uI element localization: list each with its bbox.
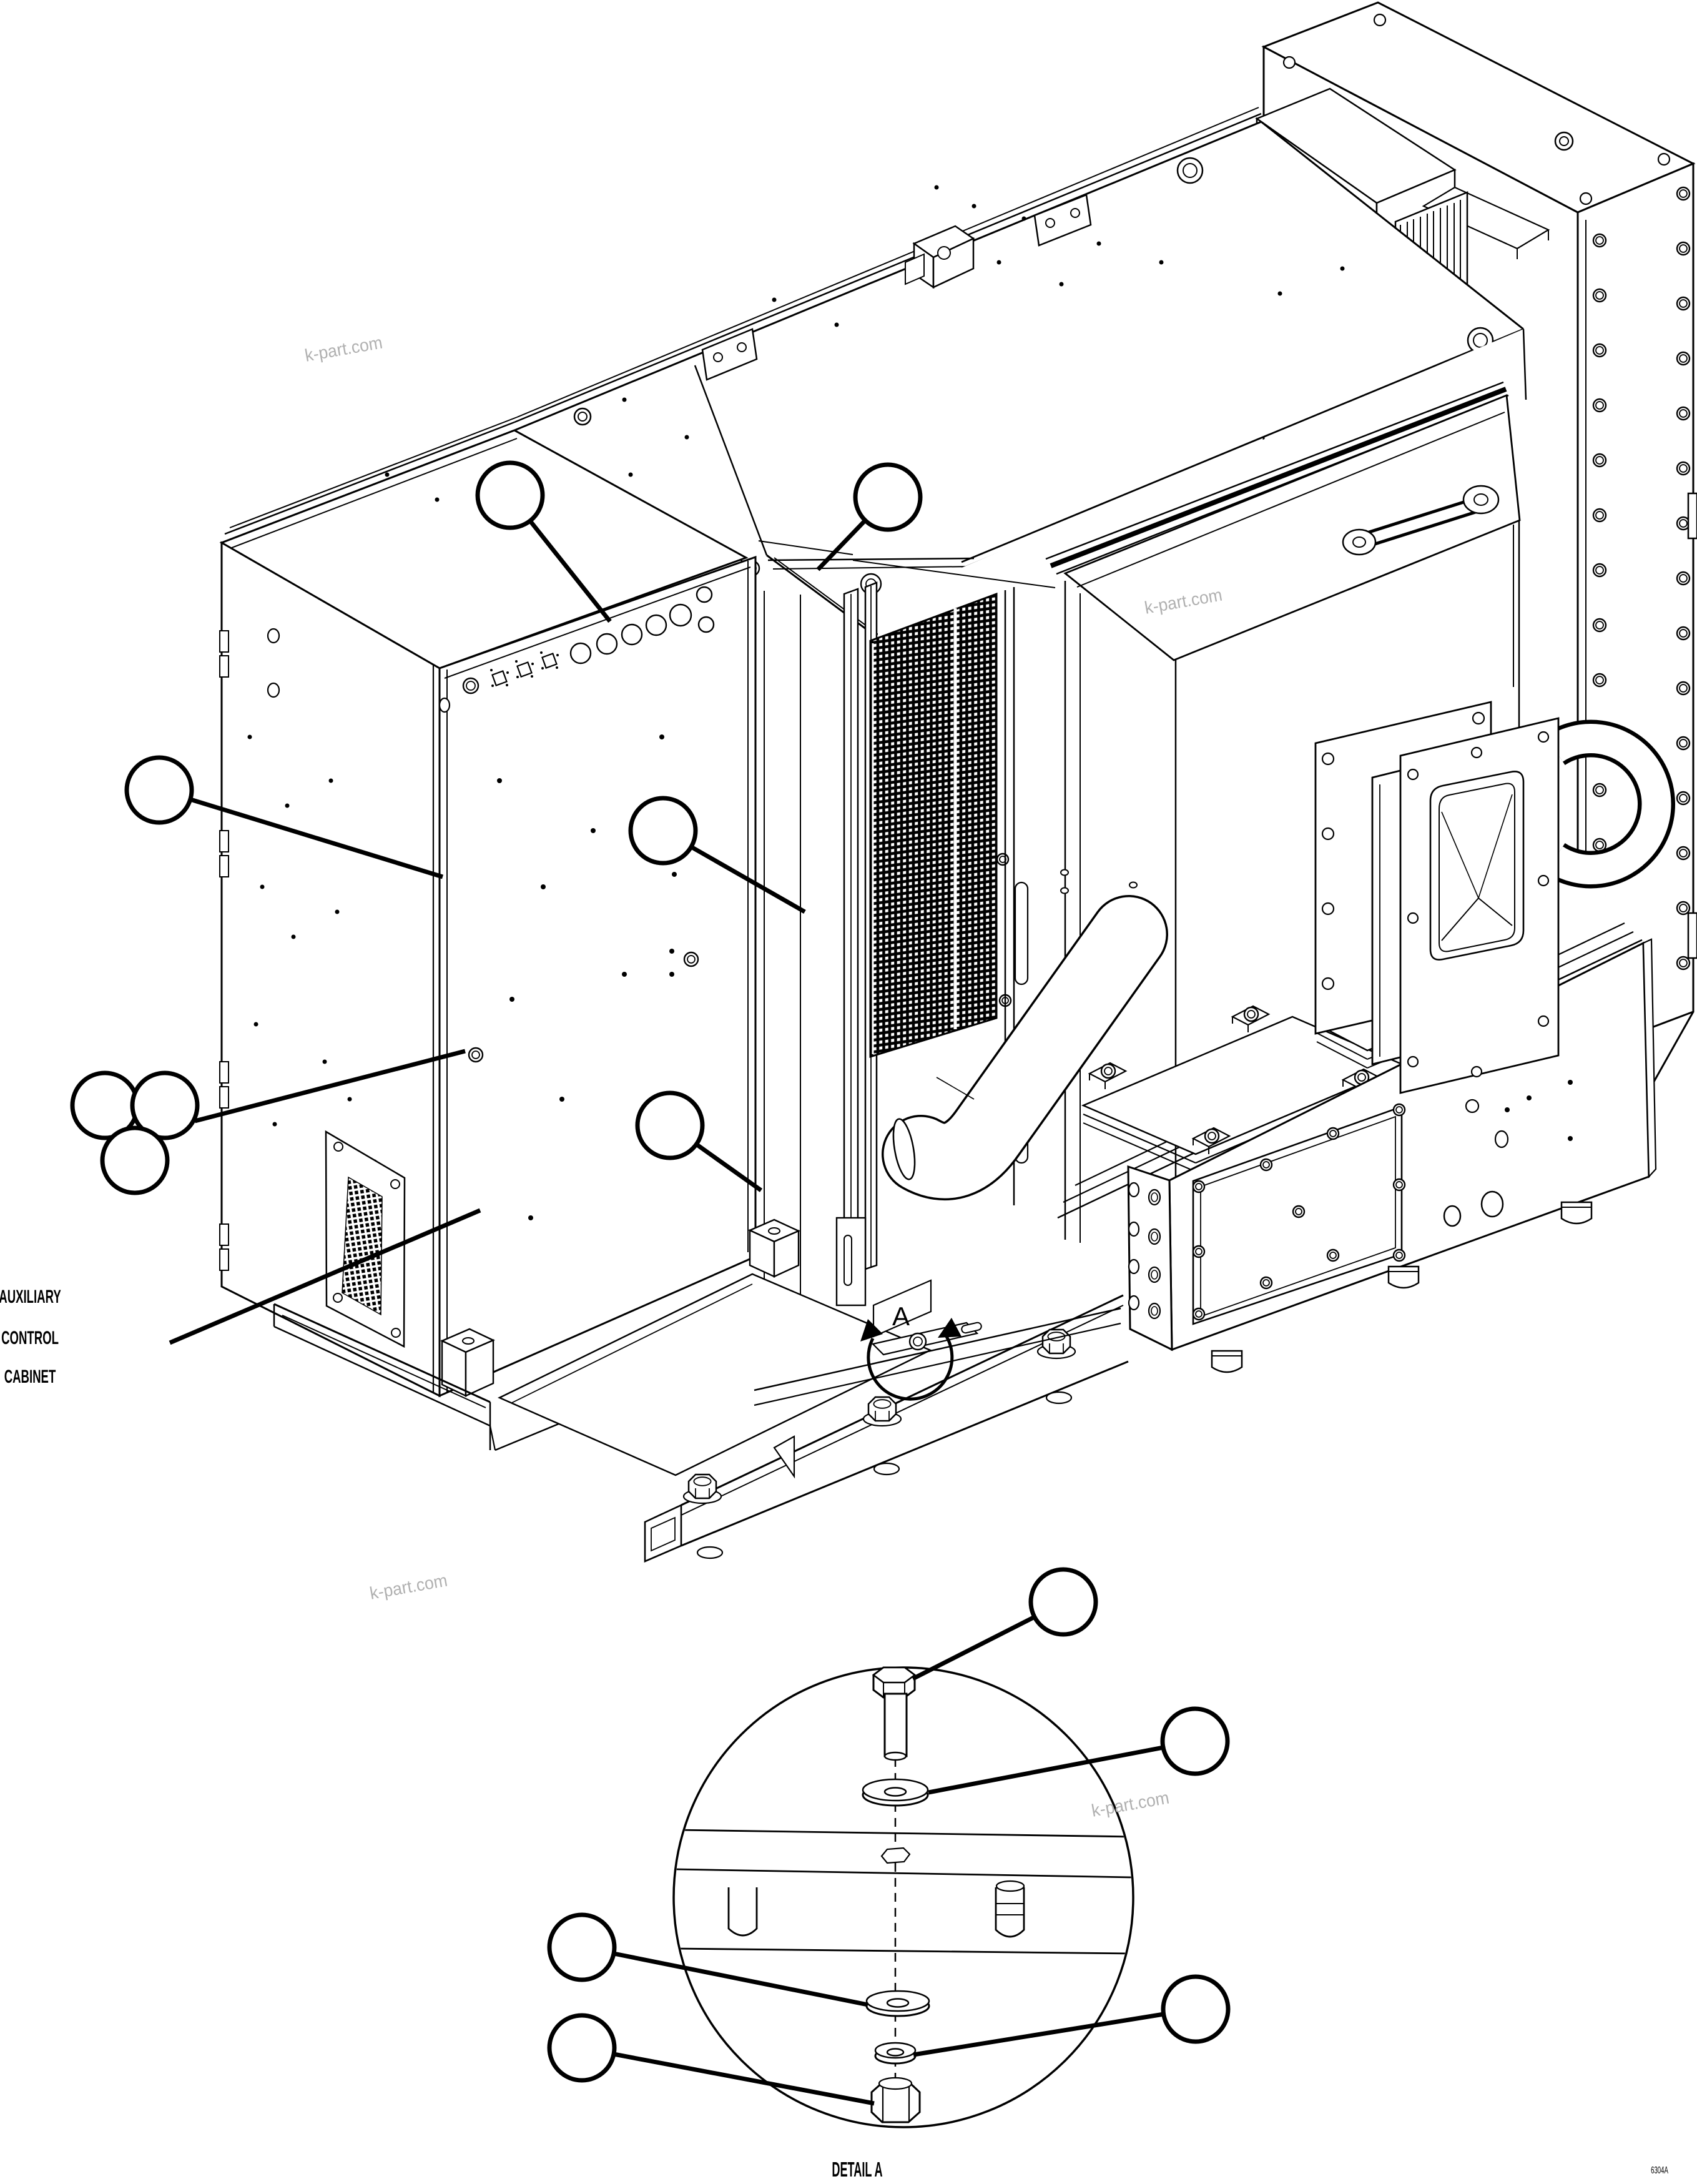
svg-text:CABINET: CABINET bbox=[4, 1366, 56, 1388]
svg-text:A: A bbox=[892, 1302, 910, 1331]
svg-text:AUXILIARY: AUXILIARY bbox=[0, 1287, 61, 1308]
svg-text:CONTROL: CONTROL bbox=[1, 1328, 59, 1349]
svg-text:DETAIL A: DETAIL A bbox=[832, 2158, 882, 2181]
svg-text:6304A: 6304A bbox=[1651, 2164, 1668, 2175]
